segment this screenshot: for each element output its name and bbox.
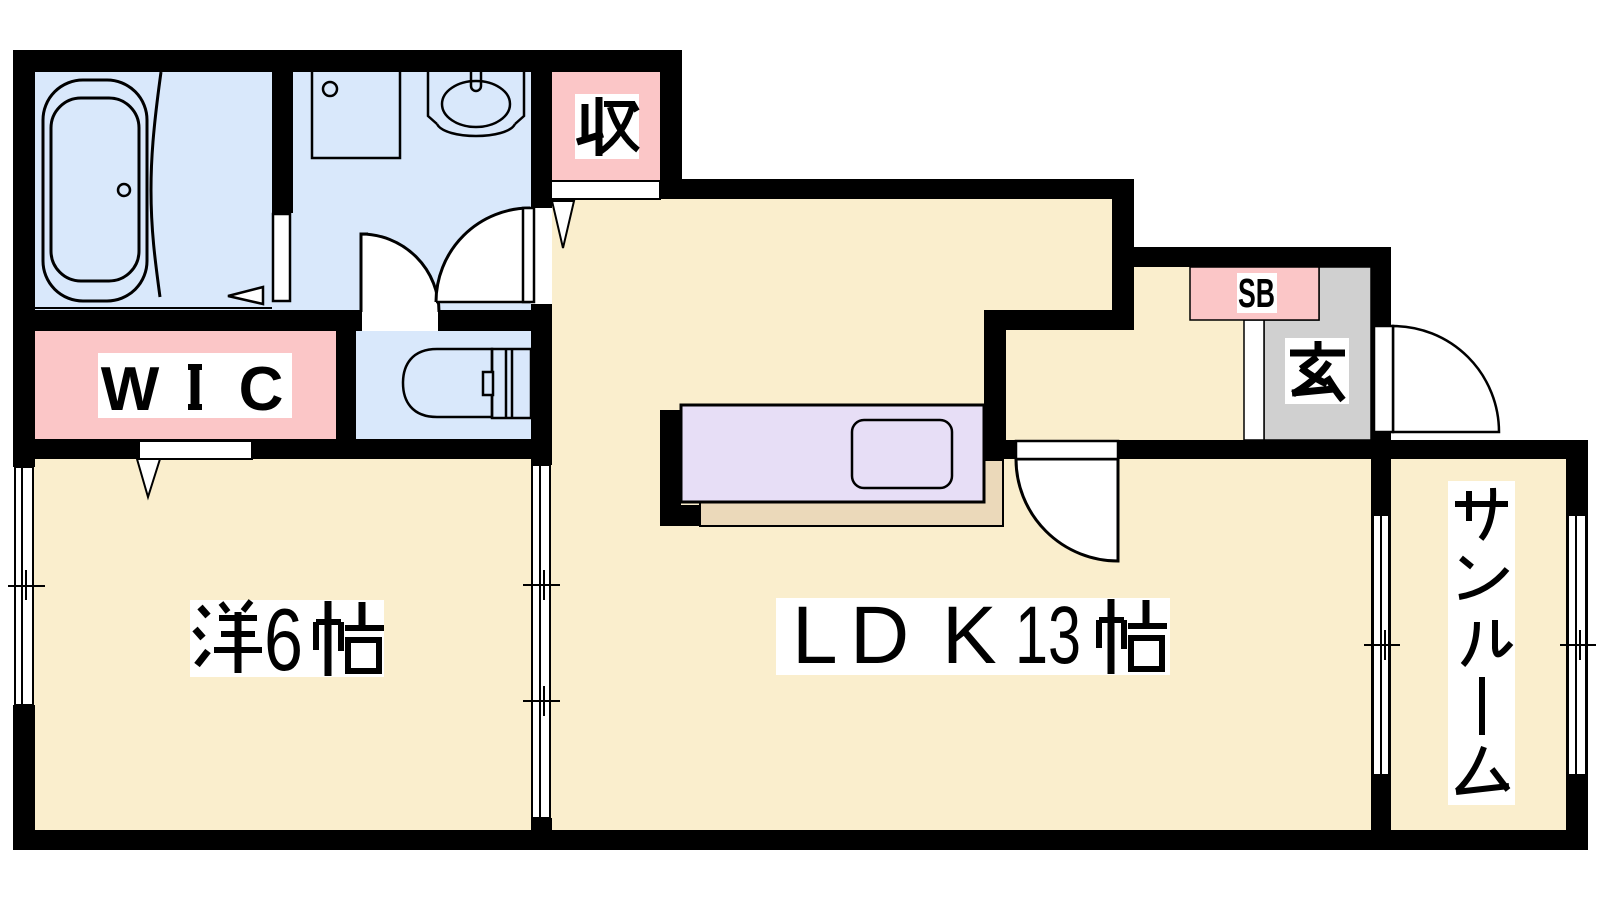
svg-text:D: D bbox=[850, 590, 909, 681]
svg-text:C: C bbox=[239, 355, 284, 424]
svg-text:K: K bbox=[942, 590, 997, 681]
svg-text:SB: SB bbox=[1238, 270, 1275, 316]
svg-text:13: 13 bbox=[1015, 590, 1081, 681]
svg-text:W: W bbox=[101, 355, 160, 424]
svg-text:L: L bbox=[792, 590, 838, 681]
svg-text:6: 6 bbox=[264, 590, 303, 689]
